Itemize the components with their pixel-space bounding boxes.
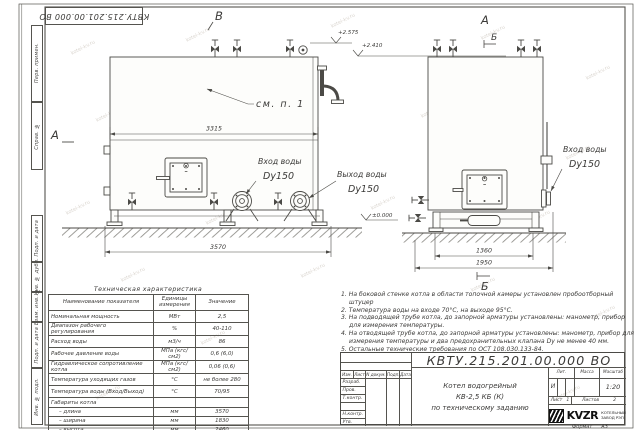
view-a-label-side: А (480, 13, 489, 27)
front-outlet-label: Выход воды (337, 170, 387, 179)
spec-row: Температура воды (Вход/Выход)°С70/95 (49, 386, 249, 398)
rev-col-list: Лист (353, 370, 365, 378)
section-b-label-top: Б (491, 33, 497, 43)
side-inlet-label: Вход воды (563, 145, 607, 154)
drawing-sheet: kotel-kv.ru kotel-kv.ru kotel-kv.ru kote… (0, 0, 644, 430)
top-doc-number-stamp: КВТУ.215.201.00.000 ВО (45, 7, 143, 25)
safety-outlet-fitting (318, 66, 344, 104)
section-a-label-front: А (50, 128, 59, 142)
spec-row: Гидравлическое сопротивление котлаМПа (к… (49, 361, 249, 374)
row-nkontr: Н.контр. (341, 410, 365, 418)
elev-zero-text: ±0.000 (372, 213, 393, 219)
mass-header: Масса (574, 367, 599, 378)
elev-marks (310, 37, 506, 56)
spec-header-row: Наименование показателя Единицы измерени… (49, 295, 249, 311)
kvzr-logo-text: KVZR (567, 409, 598, 422)
side-inlet-dy: Dy150 (569, 159, 600, 170)
sheets-cell: Листов2 (571, 396, 626, 404)
ground-side (402, 233, 566, 243)
dim-1360-text: 1360 (476, 248, 492, 255)
dim-3570-text: 3570 (210, 244, 226, 251)
doc-number: КВТУ.215.201.00.000 ВО (411, 353, 626, 367)
view-b-label: В (215, 9, 223, 23)
row-blank (341, 402, 365, 410)
spec-row: Номинальная мощностьМВт2,5 (49, 311, 249, 323)
kvzr-logo-subtext: КОТЕЛЬНЫЙЗАВОД РЭП (601, 411, 626, 420)
see-note-label: см. п. 1 (256, 99, 305, 110)
inlet-flange-front (233, 192, 252, 211)
ground-front (62, 228, 362, 238)
kvzr-emblem-icon (549, 409, 564, 423)
lit-value: И (548, 378, 557, 396)
spec-row: – высотамм2460 (49, 426, 249, 430)
title-block: Изм. Лист N докум. Подп. Дата Разраб. Пр… (340, 352, 625, 425)
spec-table: Техническая характеристика Наименование … (48, 286, 248, 430)
rev-col-izm: Изм. (341, 370, 353, 378)
spec-table-title: Техническая характеристика (48, 286, 248, 294)
view-b-arrow (208, 22, 213, 30)
side-supports (429, 212, 543, 232)
product-name: Котел водогрейный КВ-2,5 КБ (К) по техни… (411, 367, 548, 426)
frame-box-inv-podl: Инв. № подл. (31, 368, 43, 425)
elev-top-text: +2.575 (338, 30, 359, 36)
row-tkontr: Т.контр. (341, 394, 365, 402)
spec-row: Расход водым3/ч86 (49, 336, 249, 348)
spec-row: Габариты котла (49, 398, 249, 408)
spec-row: – длинамм3570 (49, 408, 249, 417)
front-supports (107, 209, 327, 226)
frame-box-podp-data-1: Подп. и дата (31, 215, 43, 262)
note-item: 4. На отводящей трубе котла, до запорной… (341, 330, 637, 346)
top-doc-number: КВТУ.215.201.00.000 ВО (39, 12, 149, 21)
frame-box-vzam-inv: Взам. инв. № (31, 292, 43, 322)
technical-notes: 1. На боковой стенке котла в области топ… (341, 291, 637, 353)
spec-row: – ширинамм1830 (49, 417, 249, 426)
frame-box-perv-primen: Перв. примен. (31, 25, 43, 102)
scale-value: 1:20 (599, 378, 626, 396)
front-inlet-dy: Dy150 (263, 171, 294, 182)
sheet-cell: Лист1 (548, 396, 571, 404)
format-label: ФорматА3 (572, 424, 608, 430)
sight-glass-icon (299, 46, 307, 54)
scale-header: Масштаб (599, 367, 626, 378)
spec-row: Диапазон рабочего регулирования%40-110 (49, 323, 249, 336)
front-outlet-dy: Dy150 (348, 184, 379, 195)
elev-mid-text: +2.410 (362, 43, 383, 49)
front-inlet-label: Вход воды (258, 157, 302, 166)
rev-col-ndokum: N докум. (365, 370, 386, 378)
lit-header: Лит. (548, 367, 574, 378)
frame-box-podp-data-2: Подп. и дата (31, 322, 43, 368)
side-view (402, 40, 566, 280)
row-utv: Утв. (341, 418, 365, 426)
row-razrab: Разраб. (341, 378, 365, 386)
note-item: 1. На боковой стенке котла в области топ… (341, 291, 637, 307)
dim-3315-text: 3315 (206, 126, 222, 133)
kvzr-logo: KVZR КОТЕЛЬНЫЙЗАВОД РЭП (548, 404, 626, 426)
rev-col-podp: Подп. (386, 370, 399, 378)
dim-1950-text: 1950 (476, 260, 492, 267)
spec-row: Рабочее давление водыМПа (кгс/см2)0,6 (6… (49, 348, 249, 361)
outlet-flange-front (291, 192, 310, 211)
frame-box-sprav: Справ. № (31, 102, 43, 170)
row-prov: Пров. (341, 386, 365, 394)
rev-col-data: Дата (399, 370, 411, 378)
note-item: 3. На подводящей трубе котла, до запорно… (341, 314, 637, 330)
spec-row: Температура уходящих газов°Сне более 280 (49, 374, 249, 386)
